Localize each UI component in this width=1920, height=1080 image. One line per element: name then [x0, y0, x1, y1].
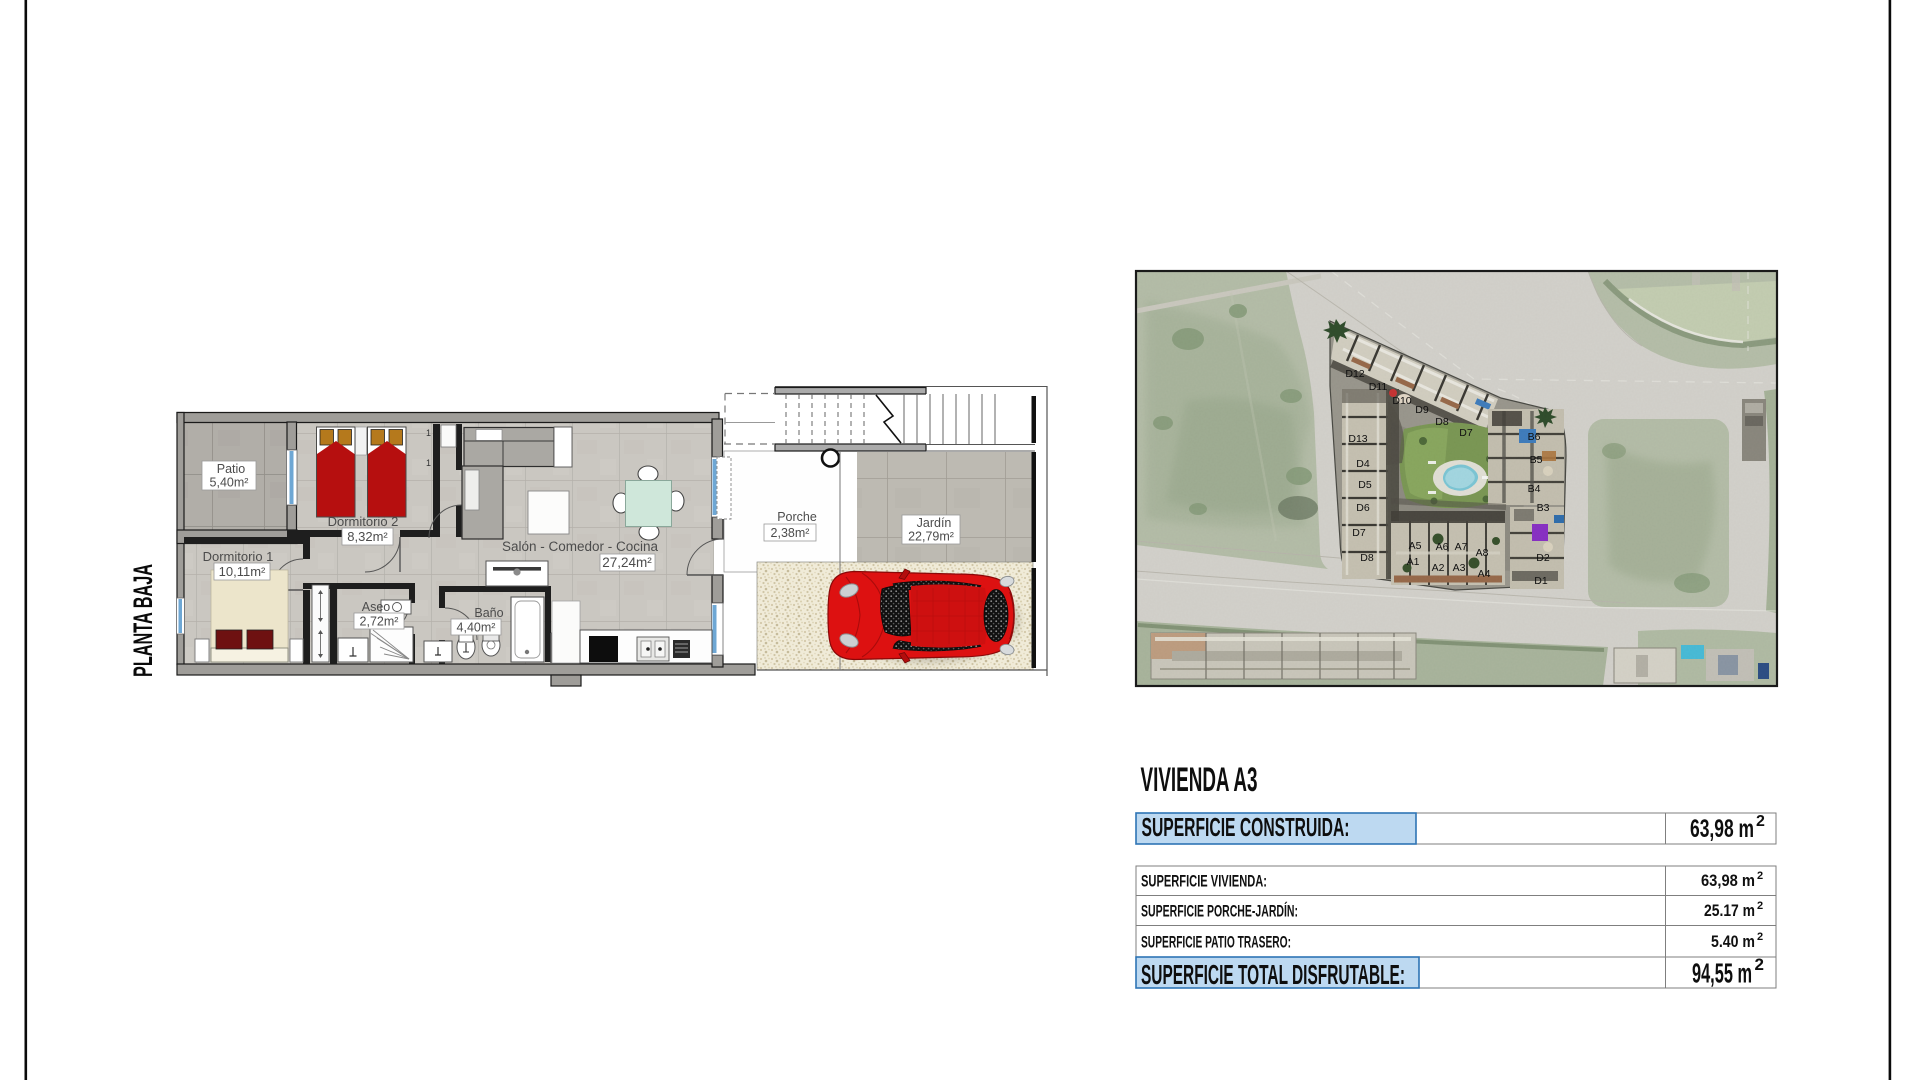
svg-text:2,38m²: 2,38m²	[771, 526, 810, 540]
svg-text:Dormitorio 2: Dormitorio 2	[328, 514, 399, 529]
svg-text:1: 1	[426, 428, 431, 438]
svg-text:2: 2	[1756, 813, 1765, 830]
svg-text:2,72m²: 2,72m²	[360, 615, 399, 629]
svg-text:25.17 m: 25.17 m	[1704, 901, 1755, 920]
svg-text:22,79m²: 22,79m²	[908, 530, 954, 544]
svg-text:94,55 m: 94,55 m	[1692, 958, 1752, 989]
svg-text:Patio: Patio	[217, 462, 246, 476]
svg-text:Jardín: Jardín	[917, 516, 952, 530]
svg-text:VIVIENDA A3: VIVIENDA A3	[1141, 761, 1258, 799]
svg-text:27,24m²: 27,24m²	[602, 555, 652, 570]
svg-text:8,32m²: 8,32m²	[347, 529, 388, 544]
svg-text:2: 2	[1755, 955, 1764, 974]
svg-text:63,98 m: 63,98 m	[1701, 871, 1755, 890]
svg-text:5.40 m: 5.40 m	[1711, 932, 1755, 951]
svg-text:63,98 m: 63,98 m	[1690, 815, 1754, 843]
svg-text:PLANTA BAJA: PLANTA BAJA	[128, 564, 158, 677]
svg-text:SUPERFICIE CONSTRUIDA:: SUPERFICIE CONSTRUIDA:	[1142, 812, 1350, 842]
svg-text:Aseo: Aseo	[362, 600, 391, 614]
svg-text:SUPERFICIE VIVIENDA:: SUPERFICIE VIVIENDA:	[1141, 872, 1267, 891]
svg-text:Porche: Porche	[777, 510, 817, 524]
svg-text:SUPERFICIE PORCHE-JARDÍN:: SUPERFICIE PORCHE-JARDÍN:	[1141, 902, 1298, 921]
svg-text:Dormitorio 1: Dormitorio 1	[203, 549, 274, 564]
svg-text:Salón - Comedor - Cocina: Salón - Comedor - Cocina	[502, 539, 659, 554]
svg-text:2: 2	[1757, 870, 1763, 882]
svg-text:1: 1	[426, 458, 431, 468]
svg-text:4,40m²: 4,40m²	[457, 621, 496, 635]
svg-text:SUPERFICIE PATIO TRASERO:: SUPERFICIE PATIO TRASERO:	[1141, 933, 1291, 952]
svg-text:2: 2	[1757, 931, 1763, 943]
svg-text:10,11m²: 10,11m²	[219, 564, 266, 579]
svg-text:5,40m²: 5,40m²	[210, 476, 249, 490]
svg-text:2: 2	[1757, 900, 1763, 912]
svg-text:SUPERFICIE TOTAL DISFRUTABLE:: SUPERFICIE TOTAL DISFRUTABLE:	[1141, 959, 1405, 990]
svg-text:Baño: Baño	[474, 606, 503, 620]
